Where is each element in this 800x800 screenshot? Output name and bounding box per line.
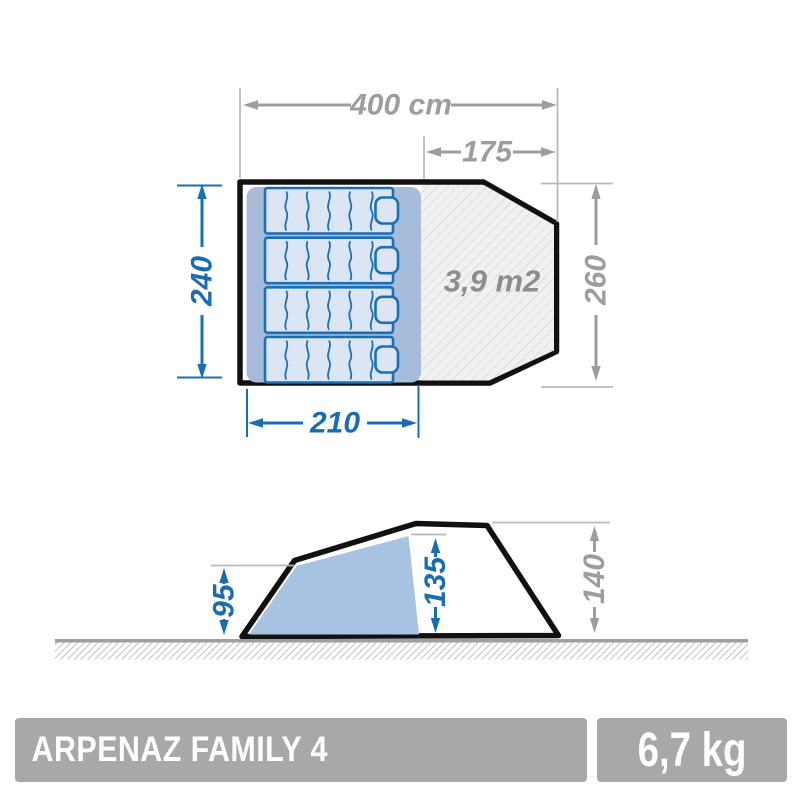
dim-total-depth-label: 260	[580, 255, 613, 306]
mattress-icon	[265, 238, 398, 284]
mattress-icon	[265, 188, 398, 234]
tent-dimensions-diagram: 3,9 m2 400 cm 175 240 260	[0, 0, 800, 800]
dim-bedroom-depth-label: 240	[186, 256, 219, 307]
porch-area-label: 3,9 m2	[444, 264, 541, 299]
product-name-bar: ARPENAZ FAMILY 4	[15, 718, 587, 782]
ground-hatch	[55, 643, 748, 660]
dimension-bedroom-depth: 240	[177, 184, 222, 379]
dim-inner-height-label: 135	[419, 556, 452, 607]
dim-total-height-label: 140	[578, 554, 611, 604]
ground-line	[55, 639, 748, 643]
dim-total-width-label: 400 cm	[349, 89, 452, 122]
dimension-porch-width: 175	[424, 136, 556, 180]
mattress-icon	[265, 287, 398, 333]
tent-side-view	[55, 524, 748, 660]
dim-bedroom-width-label: 210	[309, 407, 360, 440]
tent-top-view: 3,9 m2	[240, 182, 557, 383]
diagram-canvas: 3,9 m2 400 cm 175 240 260	[0, 0, 800, 800]
dim-porch-width-label: 175	[462, 136, 513, 169]
product-name-label: ARPENAZ FAMILY 4	[15, 730, 328, 770]
dim-rear-height-label: 95	[208, 583, 241, 618]
weight-bar: 6,7 kg	[597, 718, 787, 782]
mattress-icon	[265, 337, 398, 383]
weight-label: 6,7 kg	[638, 723, 747, 778]
dimension-bedroom-width: 210	[247, 385, 419, 440]
